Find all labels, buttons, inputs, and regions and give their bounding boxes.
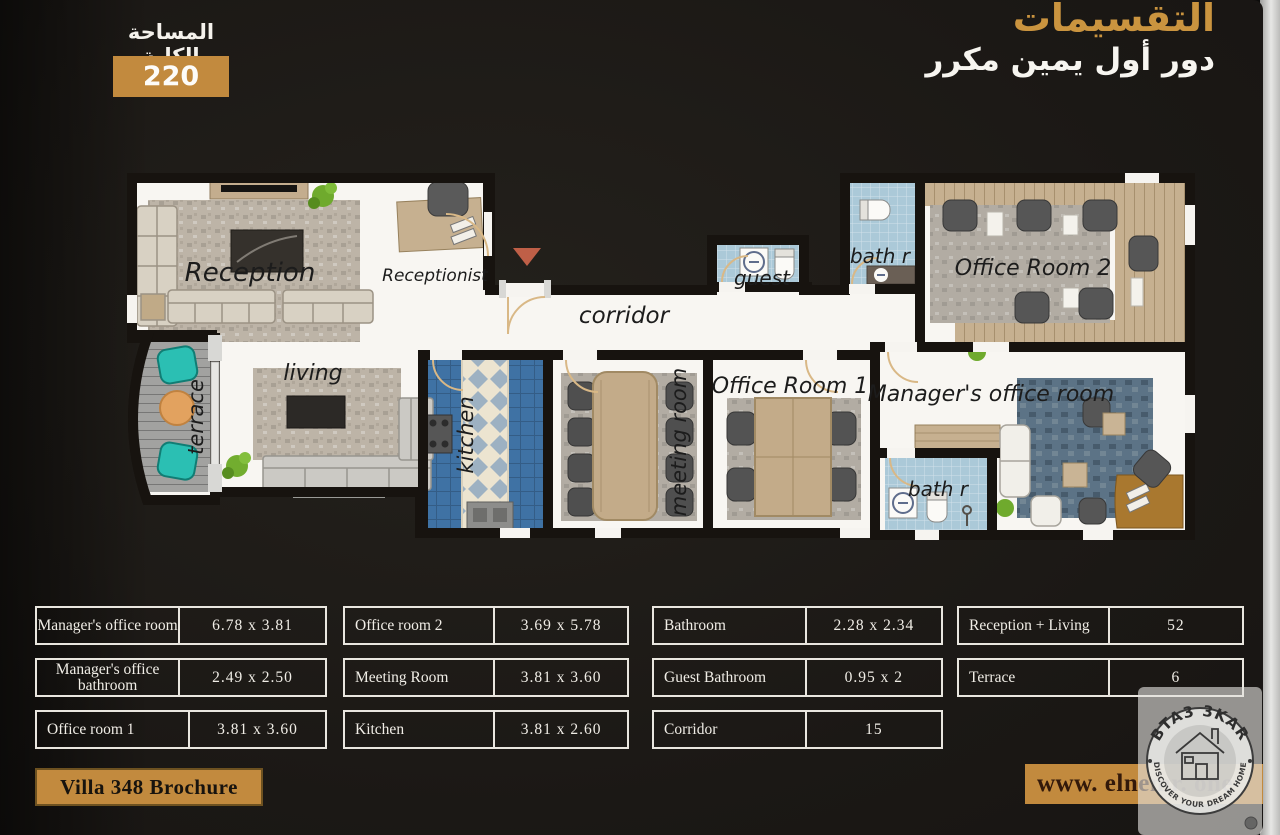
dimensions-column-3: Bathroom 2.28 x 2.34 Guest Bathroom 0.95… [652, 606, 943, 749]
room-label-receptionist: Receptionist [382, 266, 489, 286]
room-name-cell: Reception + Living [959, 608, 1110, 643]
room-size-cell: 2.49 x 2.50 [180, 660, 325, 695]
room-name-cell: Meeting Room [345, 660, 495, 695]
table-row: Guest Bathroom 0.95 x 2 [652, 658, 943, 697]
room-name-cell: Guest Bathroom [654, 660, 807, 695]
table-row: Meeting Room 3.81 x 3.60 [343, 658, 629, 697]
dimensions-column-1: Manager's office room 6.78 x 3.81 Manage… [35, 606, 327, 749]
room-name-cell: Office room 1 [37, 712, 190, 747]
room-size-cell: 52 [1110, 608, 1242, 643]
table-row: Reception + Living 52 [957, 606, 1244, 645]
room-name-cell: Terrace [959, 660, 1110, 695]
room-name-cell: Manager's office bathroom [37, 660, 180, 695]
entrance-arrow [513, 248, 541, 266]
table-row: Office room 2 3.69 x 5.78 [343, 606, 629, 645]
brochure-slide: المساحة الكلية 220 التقسيمات دور أول يمي… [0, 0, 1280, 835]
room-name-cell: Bathroom [654, 608, 807, 643]
office2-wood-bottom [955, 320, 1190, 344]
plant [996, 499, 1014, 517]
room-label-bath-manager: bath r [908, 477, 970, 501]
table-row: Office room 1 3.81 x 3.60 [35, 710, 327, 749]
page-title: التقسيمات [1013, 0, 1215, 40]
page-subtitle: دور أول يمين مكرر [925, 42, 1215, 78]
living-coffee-table [287, 396, 345, 428]
table-row: Manager's office room 6.78 x 3.81 [35, 606, 327, 645]
tv [221, 185, 297, 192]
room-size-cell: 3.81 x 3.60 [190, 712, 325, 747]
terrace-glass-door [211, 362, 219, 466]
room-label-guest: guest [734, 266, 791, 290]
meeting-table [593, 372, 657, 520]
room-label-corridor: corridor [579, 303, 671, 329]
table-row: Kitchen 3.81 x 2.60 [343, 710, 629, 749]
room-size-cell: 3.81 x 3.60 [495, 660, 627, 695]
room-size-cell: 3.81 x 2.60 [495, 712, 627, 747]
room-label-terrace: terrace [184, 379, 208, 455]
stove [426, 415, 452, 453]
room-label-bath-top: bath r [850, 244, 912, 268]
manager-cabinet [915, 425, 1000, 449]
room-label-office-2: Office Room 2 [955, 256, 1112, 281]
room-label-kitchen: kitchen [454, 396, 478, 473]
room-label-office-1: Office Room 1 [712, 374, 869, 399]
total-area-value-badge: 220 [113, 56, 229, 97]
room-name-cell: Corridor [654, 712, 807, 747]
receptionist-chair [428, 182, 468, 216]
room-size-cell: 15 [807, 712, 941, 747]
table-row: Manager's office bathroom 2.49 x 2.50 [35, 658, 327, 697]
room-name-cell: Kitchen [345, 712, 495, 747]
room-label-living: living [283, 361, 342, 386]
table-row: Bathroom 2.28 x 2.34 [652, 606, 943, 645]
badge-dot-icon [1245, 817, 1257, 829]
brochure-title-button[interactable]: Villa 348 Brochure [35, 768, 263, 806]
room-label-meeting: meeting room [667, 368, 691, 516]
dimensions-column-2: Office room 2 3.69 x 5.78 Meeting Room 3… [343, 606, 629, 749]
room-size-cell: 2.28 x 2.34 [807, 608, 941, 643]
room-size-cell: 6.78 x 3.81 [180, 608, 325, 643]
dimensions-column-4: Reception + Living 52 Terrace 6 [957, 606, 1244, 697]
table-row: Corridor 15 [652, 710, 943, 749]
room-label-reception: Reception [185, 258, 316, 288]
page-edge-strip [1260, 0, 1280, 835]
room-size-cell: 0.95 x 2 [807, 660, 941, 695]
floor-plan: Reception Receptionist corridor guest ba… [115, 170, 1200, 555]
room-size-cell: 3.69 x 5.78 [495, 608, 627, 643]
room-name-cell: Manager's office room [37, 608, 180, 643]
slide-background: المساحة الكلية 220 التقسيمات دور أول يمي… [0, 0, 1263, 835]
watermark: BTA3 3KAR DISCOVER YOUR DREAM HOME [1138, 687, 1262, 835]
room-name-cell: Office room 2 [345, 608, 495, 643]
room-label-manager: Manager's office room [868, 382, 1114, 407]
